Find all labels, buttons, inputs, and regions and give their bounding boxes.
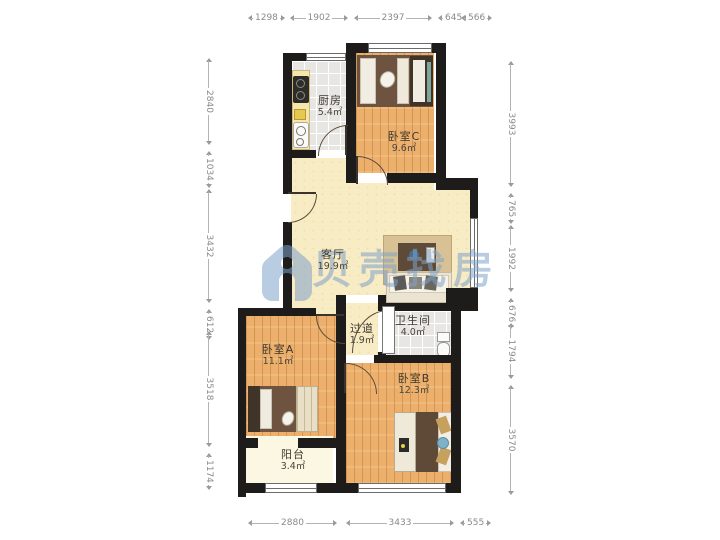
wall [446, 483, 461, 493]
room-label-bedroom-b: 卧室B 12.3㎡ [382, 372, 446, 397]
room-name: 卫生间 [381, 314, 445, 327]
wall [283, 222, 292, 314]
dimension-left-6: 1174 [203, 450, 215, 488]
dimension-right-2: 765 [505, 190, 517, 222]
room-label-bathroom: 卫生间 4.0㎡ [381, 314, 445, 339]
bedroom-b-bed [416, 412, 438, 472]
wall [238, 308, 316, 316]
window [368, 43, 432, 53]
dimension-top-3: 2397 [351, 12, 435, 24]
dimension-left-4: 612 [203, 306, 215, 328]
dimension-left-5: 3518 [203, 328, 215, 450]
wall [436, 43, 446, 190]
wall [374, 355, 451, 363]
room-label-balcony: 阳台 3.4㎡ [261, 448, 325, 473]
bedroom-c-door-leaf [356, 156, 358, 184]
dimension-top-4: 645 [435, 12, 458, 24]
dimension-left-1: 2840 [203, 55, 215, 148]
room-name: 厨房 [298, 94, 362, 107]
wall [284, 150, 316, 158]
wall [470, 182, 478, 218]
room-area: 19.9㎡ [301, 261, 365, 273]
room-label-kitchen: 厨房 5.4㎡ [298, 94, 362, 119]
dimension-top-1: 1298 [245, 12, 287, 24]
sink-basin-icon [296, 138, 304, 146]
dimension-right-3: 1992 [505, 222, 517, 295]
wall [238, 483, 265, 493]
wall [283, 53, 292, 194]
dimension-right-4: 676 [505, 295, 517, 320]
dimension-top-2: 1902 [287, 12, 351, 24]
window [358, 483, 446, 493]
window [306, 53, 346, 61]
room-name: 阳台 [261, 448, 325, 461]
wall [298, 438, 336, 448]
dimension-right-1: 3993 [505, 58, 517, 190]
bedroom-a-headboard [248, 386, 260, 432]
room-area: 5.4㎡ [298, 107, 362, 119]
dimension-left-2: 1034 [203, 148, 215, 186]
room-name: 卧室A [246, 343, 310, 356]
room-name: 卧室C [372, 130, 436, 143]
bedroom-a-wardrobe [296, 386, 318, 432]
sofa-pillow-icon [393, 275, 407, 291]
room-label-living-room: 客厅 19.9㎡ [301, 248, 365, 273]
room-area: 9.6㎡ [372, 143, 436, 155]
wall [238, 308, 246, 497]
bedroom-b-plate-icon [437, 437, 449, 449]
room-name: 卧室B [382, 372, 446, 385]
decor-card-icon [426, 247, 435, 263]
dimension-right-5: 1794 [505, 320, 517, 382]
room-label-bedroom-c: 卧室C 9.6㎡ [372, 130, 436, 155]
window [265, 483, 317, 493]
stove-burner-icon [296, 79, 305, 88]
sofa-pillow-icon [424, 275, 438, 291]
room-area: 4.0㎡ [381, 327, 445, 339]
dimension-right-6: 3570 [505, 382, 517, 498]
bedroom-c-mattress [360, 58, 376, 104]
window [470, 218, 478, 288]
sink-basin-icon [296, 126, 306, 136]
wall [317, 483, 358, 493]
entry-door-leaf [288, 192, 316, 194]
dimension-bottom-3: 555 [457, 517, 477, 529]
bedroom-a-pillow [260, 389, 272, 429]
decor-blue-icon [409, 250, 419, 260]
room-area: 3.4㎡ [261, 461, 325, 473]
dimension-bottom-2: 3433 [343, 517, 457, 529]
wall [378, 295, 386, 306]
room-name: 客厅 [301, 248, 365, 261]
bedroom-b-appliance-dot [401, 444, 405, 448]
bedroom-b-door-leaf [344, 363, 346, 393]
bedroom-a-door-leaf [316, 314, 344, 316]
room-area: 12.3㎡ [382, 385, 446, 397]
room-area: 11.1㎡ [246, 356, 310, 368]
bedroom-c-wardrobe-door [413, 60, 425, 102]
dimension-left-3: 3432 [203, 186, 215, 306]
sofa-pillow-icon [409, 277, 422, 289]
bedroom-c-wardrobe-accent [427, 62, 431, 102]
bedroom-c-mattress [397, 58, 409, 104]
dimension-bottom-1: 2880 [245, 517, 340, 529]
wall [238, 438, 258, 448]
floorplan-canvas: 贝壳找房 厨房 5.4㎡ 卧室C 9.6㎡ 客厅 19.9㎡ 过道 1.9㎡ 卫… [0, 0, 720, 540]
room-label-bedroom-a: 卧室A 11.1㎡ [246, 343, 310, 368]
wall [336, 355, 344, 363]
dimension-top-5: 566 [458, 12, 478, 24]
kitchen-door-leaf [345, 125, 347, 155]
wall [451, 295, 461, 485]
